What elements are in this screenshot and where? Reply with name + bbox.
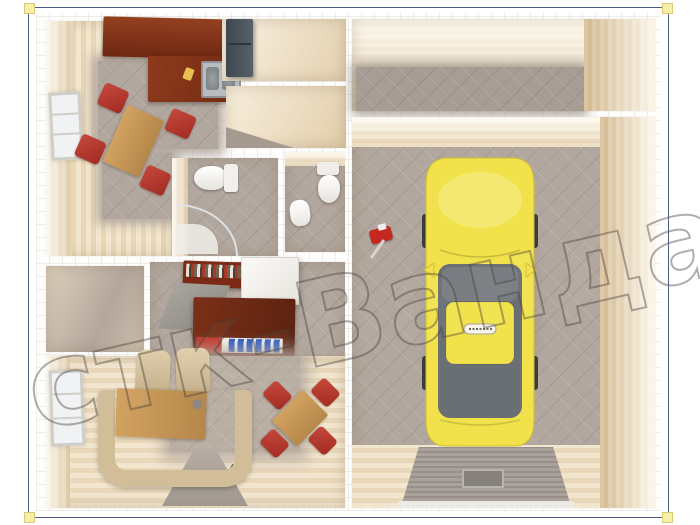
selection-border[interactable]: [28, 7, 669, 518]
selection-handle-bottom-left[interactable]: [24, 512, 35, 523]
selection-handle-bottom-right[interactable]: [662, 512, 673, 523]
floor-plan-render: стк-Ванда: [0, 0, 700, 525]
selection-handle-top-left[interactable]: [24, 3, 35, 14]
selection-handle-top-right[interactable]: [662, 3, 673, 14]
